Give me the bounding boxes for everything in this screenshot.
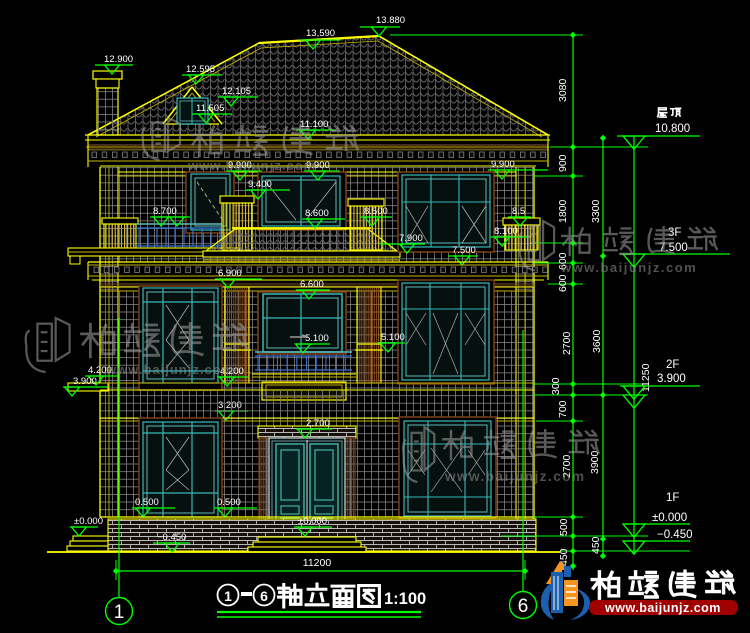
svg-text:2.700: 2.700 [306, 418, 330, 429]
svg-text:12.595: 12.595 [186, 64, 215, 75]
svg-text:www.baijunjz.com: www.baijunjz.com [560, 260, 697, 275]
svg-text:5.100: 5.100 [305, 333, 329, 344]
svg-text:8.600: 8.600 [305, 208, 329, 219]
svg-text:600: 600 [557, 274, 569, 292]
svg-text:2F: 2F [666, 359, 679, 371]
svg-text:www.baijunjz.com: www.baijunjz.com [187, 158, 316, 173]
svg-text:±0.000: ±0.000 [652, 512, 687, 524]
svg-text:3.900: 3.900 [73, 376, 97, 387]
svg-text:1800: 1800 [557, 199, 569, 223]
svg-text:±0.000: ±0.000 [298, 516, 327, 527]
svg-text:0.500: 0.500 [135, 497, 159, 508]
svg-text:1:100: 1:100 [384, 590, 426, 608]
svg-text:0.500: 0.500 [217, 497, 241, 508]
svg-text:8.100: 8.100 [494, 226, 518, 237]
svg-text:9.900: 9.900 [491, 159, 515, 170]
svg-text:1: 1 [224, 588, 232, 604]
svg-text:3080: 3080 [557, 78, 569, 102]
svg-text:500: 500 [558, 518, 570, 536]
svg-text:9.400: 9.400 [248, 179, 272, 190]
svg-text:5.100: 5.100 [381, 332, 405, 343]
svg-text:7.900: 7.900 [399, 233, 423, 244]
svg-text:3900: 3900 [589, 450, 601, 474]
svg-text:3F: 3F [668, 227, 681, 239]
svg-text:7.500: 7.500 [452, 245, 476, 256]
svg-text:6: 6 [260, 588, 268, 604]
svg-text:13,590: 13,590 [306, 28, 335, 39]
svg-text:1F: 1F [666, 492, 679, 504]
svg-text:6: 6 [518, 596, 529, 617]
svg-text:8.5: 8.5 [512, 206, 525, 217]
svg-text:3600: 3600 [591, 329, 603, 353]
svg-text:www.baijunjz.com: www.baijunjz.com [444, 469, 586, 484]
svg-text:1: 1 [114, 602, 125, 623]
svg-text:6.900: 6.900 [218, 268, 242, 279]
svg-text:−0.450: −0.450 [657, 529, 693, 541]
svg-text:900: 900 [557, 154, 569, 172]
svg-text:www.baijunjz.com: www.baijunjz.com [105, 362, 234, 377]
svg-text:−0.450: −0.450 [157, 532, 186, 543]
svg-text:3300: 3300 [590, 199, 602, 223]
svg-text:11200: 11200 [303, 557, 332, 569]
svg-text:www.baijunjz.com: www.baijunjz.com [604, 601, 721, 615]
svg-text:450: 450 [590, 536, 602, 554]
svg-text:8.500: 8.500 [364, 206, 388, 217]
svg-text:300: 300 [550, 377, 562, 395]
svg-text:13.880: 13.880 [376, 15, 405, 26]
svg-text:12.105: 12.105 [222, 86, 251, 97]
svg-text:10.800: 10.800 [655, 123, 690, 135]
svg-text:11.505: 11.505 [196, 103, 224, 114]
svg-text:700: 700 [557, 400, 569, 418]
svg-text:11250: 11250 [640, 363, 652, 392]
svg-text:6.600: 6.600 [300, 279, 324, 290]
svg-text:8.700: 8.700 [153, 206, 177, 217]
svg-text:±0.000: ±0.000 [74, 516, 103, 527]
svg-text:2700: 2700 [561, 331, 573, 355]
svg-text:12.900: 12.900 [104, 54, 133, 65]
svg-text:3.900: 3.900 [657, 373, 686, 385]
